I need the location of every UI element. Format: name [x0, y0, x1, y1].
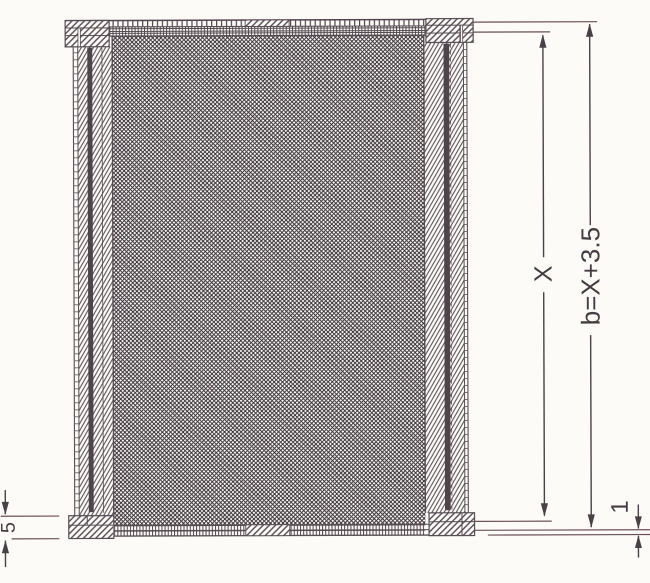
svg-text:b=X+3.5: b=X+3.5 — [575, 227, 605, 325]
svg-text:5: 5 — [0, 522, 20, 533]
svg-text:1: 1 — [607, 500, 634, 513]
svg-text:X: X — [530, 265, 558, 282]
